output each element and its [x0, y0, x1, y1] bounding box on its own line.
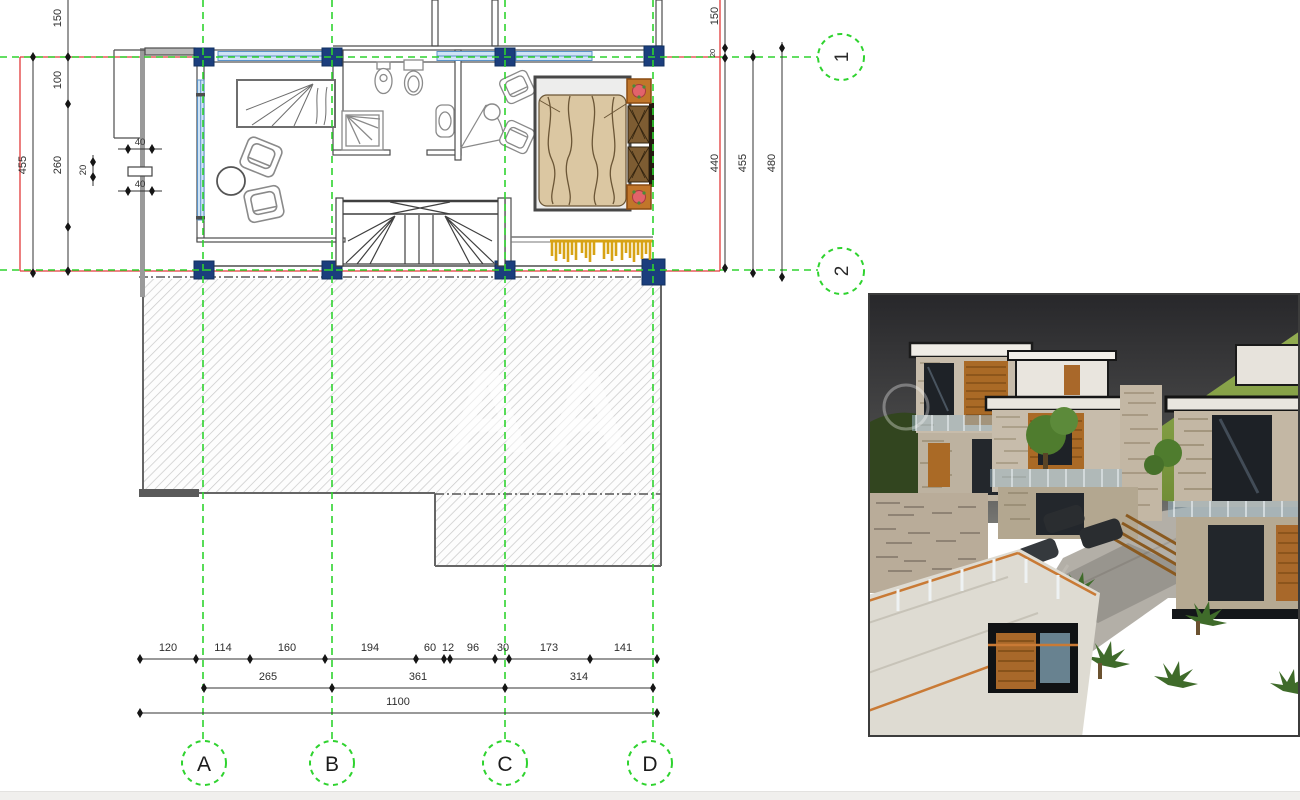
- floor-plan-drawing: AA: [0, 0, 868, 800]
- dim-label: 194: [361, 642, 379, 654]
- shower: [342, 111, 383, 150]
- armchair: [498, 69, 536, 105]
- grid-bubble-label: A: [197, 753, 211, 776]
- grid-bubble-label: 1: [832, 52, 853, 63]
- living-room: [217, 80, 335, 223]
- dim-label: 12: [442, 642, 454, 654]
- daybed: [237, 80, 335, 127]
- grid-bubble-label: D: [642, 753, 657, 776]
- stairs: [336, 198, 505, 266]
- dim-label: 114: [214, 642, 232, 654]
- armchair: [238, 135, 283, 178]
- dimensions-left: 455 150 100 260: [17, 0, 71, 278]
- dim-label: 20: [708, 49, 717, 57]
- dim-label: 314: [570, 671, 588, 683]
- dim-label: 260: [52, 156, 64, 174]
- headboard-panels: [628, 103, 654, 187]
- dim-label: 361: [409, 671, 427, 683]
- dim-label: 455: [17, 156, 29, 174]
- dim-label: 96: [467, 642, 479, 654]
- page: AA: [0, 0, 1300, 800]
- hanging-clothes: [552, 240, 650, 262]
- dim-label: 150: [52, 9, 64, 27]
- dim-label: 1100: [386, 696, 410, 708]
- side-table: [484, 104, 500, 120]
- grid-bubble-c: C: [483, 741, 527, 785]
- watermark-text: AA: [445, 346, 643, 478]
- bathroom: [342, 60, 454, 150]
- grid-bubble-d: D: [628, 741, 672, 785]
- dim-label: 20: [78, 165, 89, 176]
- dim-label: 100: [52, 71, 64, 89]
- dim-label: 40: [135, 179, 146, 190]
- dim-label: 440: [709, 154, 721, 172]
- toilet: [404, 60, 423, 95]
- grid-bubble-1: 1: [818, 34, 864, 80]
- dimensions-bottom: 120 114 160 194 60 12 96 30 173 141 265 …: [137, 642, 660, 718]
- bidet: [375, 62, 392, 94]
- grid-bubble-a: A: [182, 741, 226, 785]
- grid-bubble-2: 2: [818, 248, 864, 294]
- dim-label: 30: [497, 642, 509, 654]
- grid-bubble-b: B: [310, 741, 354, 785]
- dim-label: 265: [259, 671, 277, 683]
- dim-label: 480: [766, 154, 778, 172]
- closet: [511, 237, 653, 262]
- grid-bubble-label: 2: [832, 266, 853, 277]
- dim-label: 141: [614, 642, 632, 654]
- grid-bubble-label: C: [497, 753, 512, 776]
- double-bed: [535, 77, 630, 210]
- dim-label: 120: [159, 642, 177, 654]
- sink: [436, 105, 454, 137]
- dim-label: 60: [424, 642, 436, 654]
- dim-label: 173: [540, 642, 558, 654]
- grid-bubble-label: B: [325, 753, 339, 776]
- render-scene: [868, 293, 1300, 737]
- dim-label: 160: [278, 642, 296, 654]
- armchair: [498, 119, 536, 155]
- bedroom: [461, 69, 654, 210]
- side-table: [217, 167, 245, 195]
- dim-label: 40: [135, 137, 146, 148]
- detail-element: 40 40 20: [78, 137, 162, 196]
- render-photo: [868, 293, 1300, 737]
- dim-label: 150: [709, 7, 721, 25]
- armchair: [243, 185, 285, 224]
- page-bottom-strip: [0, 791, 1300, 800]
- dim-label: 455: [737, 154, 749, 172]
